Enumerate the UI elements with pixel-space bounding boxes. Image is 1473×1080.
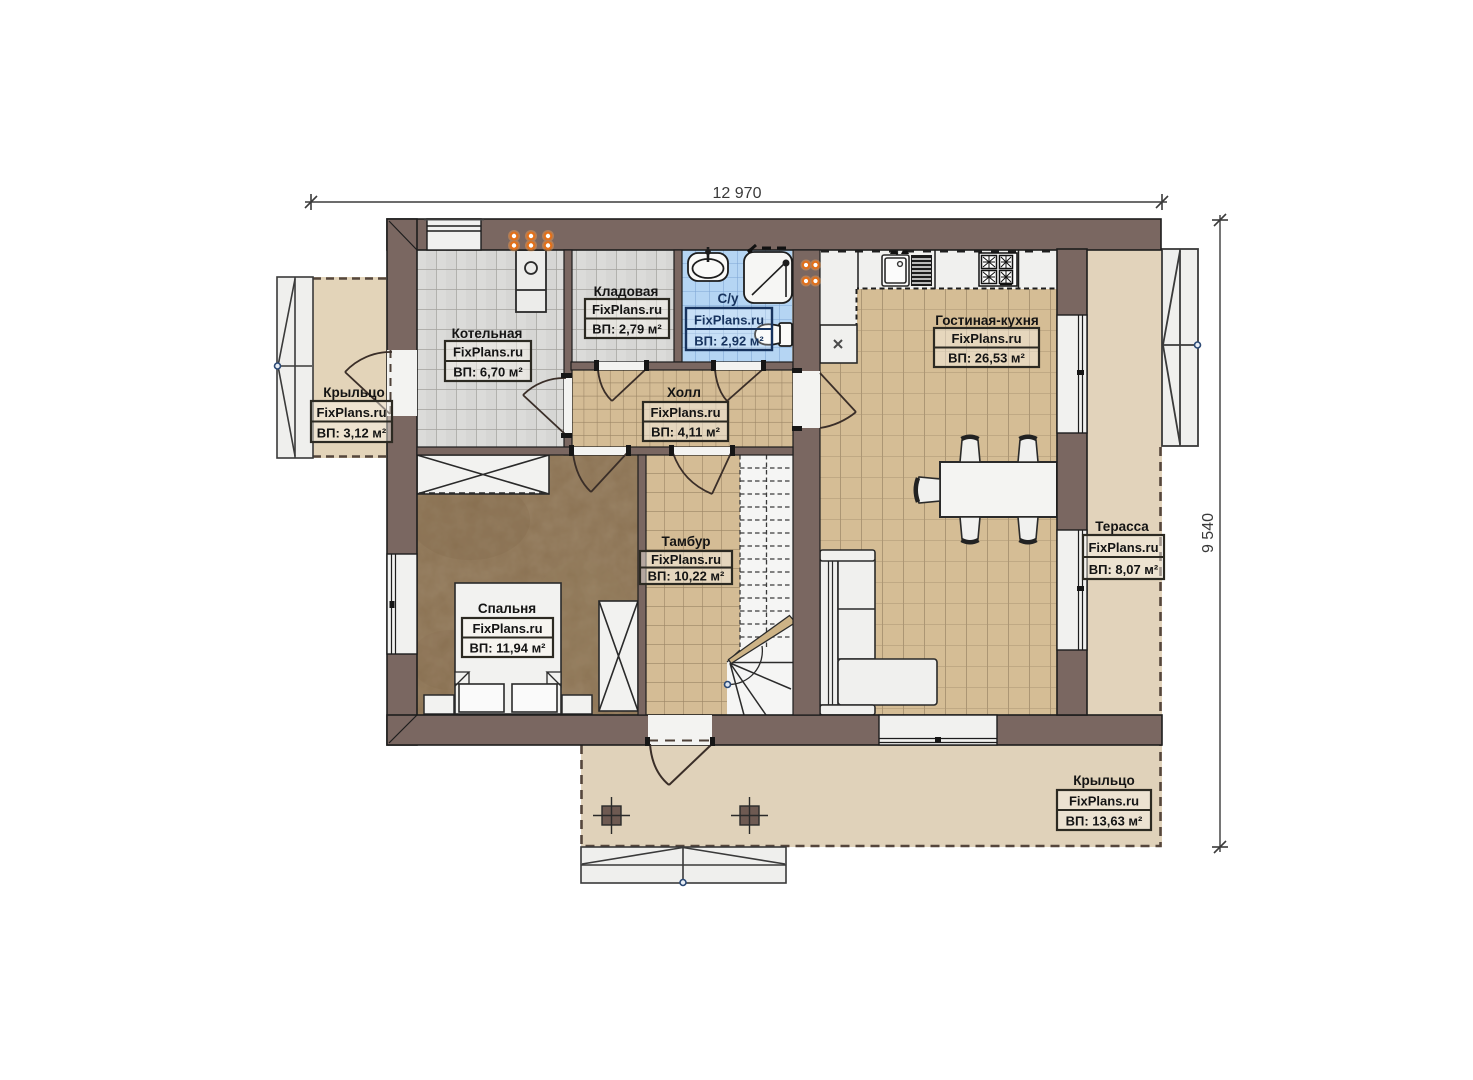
svg-text:12 970: 12 970	[713, 185, 762, 202]
svg-text:Котельная: Котельная	[452, 326, 523, 341]
svg-text:ВП: 10,22 м²: ВП: 10,22 м²	[648, 569, 725, 584]
svg-text:FixPlans.ru: FixPlans.ru	[472, 621, 542, 636]
svg-text:FixPlans.ru: FixPlans.ru	[1069, 794, 1139, 809]
svg-text:ВП: 8,07 м²: ВП: 8,07 м²	[1089, 562, 1159, 577]
svg-text:ВП: 6,70 м²: ВП: 6,70 м²	[453, 365, 523, 380]
svg-text:С/у: С/у	[717, 291, 739, 306]
svg-text:9 540: 9 540	[1200, 513, 1217, 553]
svg-text:Гостиная-кухня: Гостиная-кухня	[935, 313, 1038, 328]
svg-text:FixPlans.ru: FixPlans.ru	[951, 331, 1021, 346]
svg-text:ВП: 4,11 м²: ВП: 4,11 м²	[651, 425, 720, 440]
svg-text:Тамбур: Тамбур	[662, 534, 711, 549]
svg-text:FixPlans.ru: FixPlans.ru	[650, 405, 720, 420]
svg-text:ВП: 3,12 м²: ВП: 3,12 м²	[317, 426, 387, 441]
svg-text:ВП: 2,92 м²: ВП: 2,92 м²	[694, 334, 764, 349]
svg-text:ВП: 2,79 м²: ВП: 2,79 м²	[592, 322, 662, 337]
svg-text:Терасса: Терасса	[1095, 519, 1149, 534]
svg-text:ВП: 11,94 м²: ВП: 11,94 м²	[469, 641, 546, 656]
svg-text:ВП: 26,53 м²: ВП: 26,53 м²	[948, 351, 1025, 366]
svg-text:Спальня: Спальня	[478, 601, 536, 616]
svg-text:FixPlans.ru: FixPlans.ru	[453, 345, 523, 360]
svg-text:FixPlans.ru: FixPlans.ru	[651, 552, 721, 567]
svg-text:FixPlans.ru: FixPlans.ru	[592, 302, 662, 317]
svg-text:FixPlans.ru: FixPlans.ru	[694, 313, 764, 328]
svg-text:ВП: 13,63 м²: ВП: 13,63 м²	[1066, 814, 1143, 829]
svg-text:FixPlans.ru: FixPlans.ru	[1088, 540, 1158, 555]
svg-text:Холл: Холл	[667, 385, 701, 400]
svg-text:FixPlans.ru: FixPlans.ru	[316, 405, 386, 420]
svg-text:Кладовая: Кладовая	[594, 284, 659, 299]
svg-text:Крыльцо: Крыльцо	[1073, 773, 1134, 788]
svg-text:Крыльцо: Крыльцо	[323, 385, 384, 400]
